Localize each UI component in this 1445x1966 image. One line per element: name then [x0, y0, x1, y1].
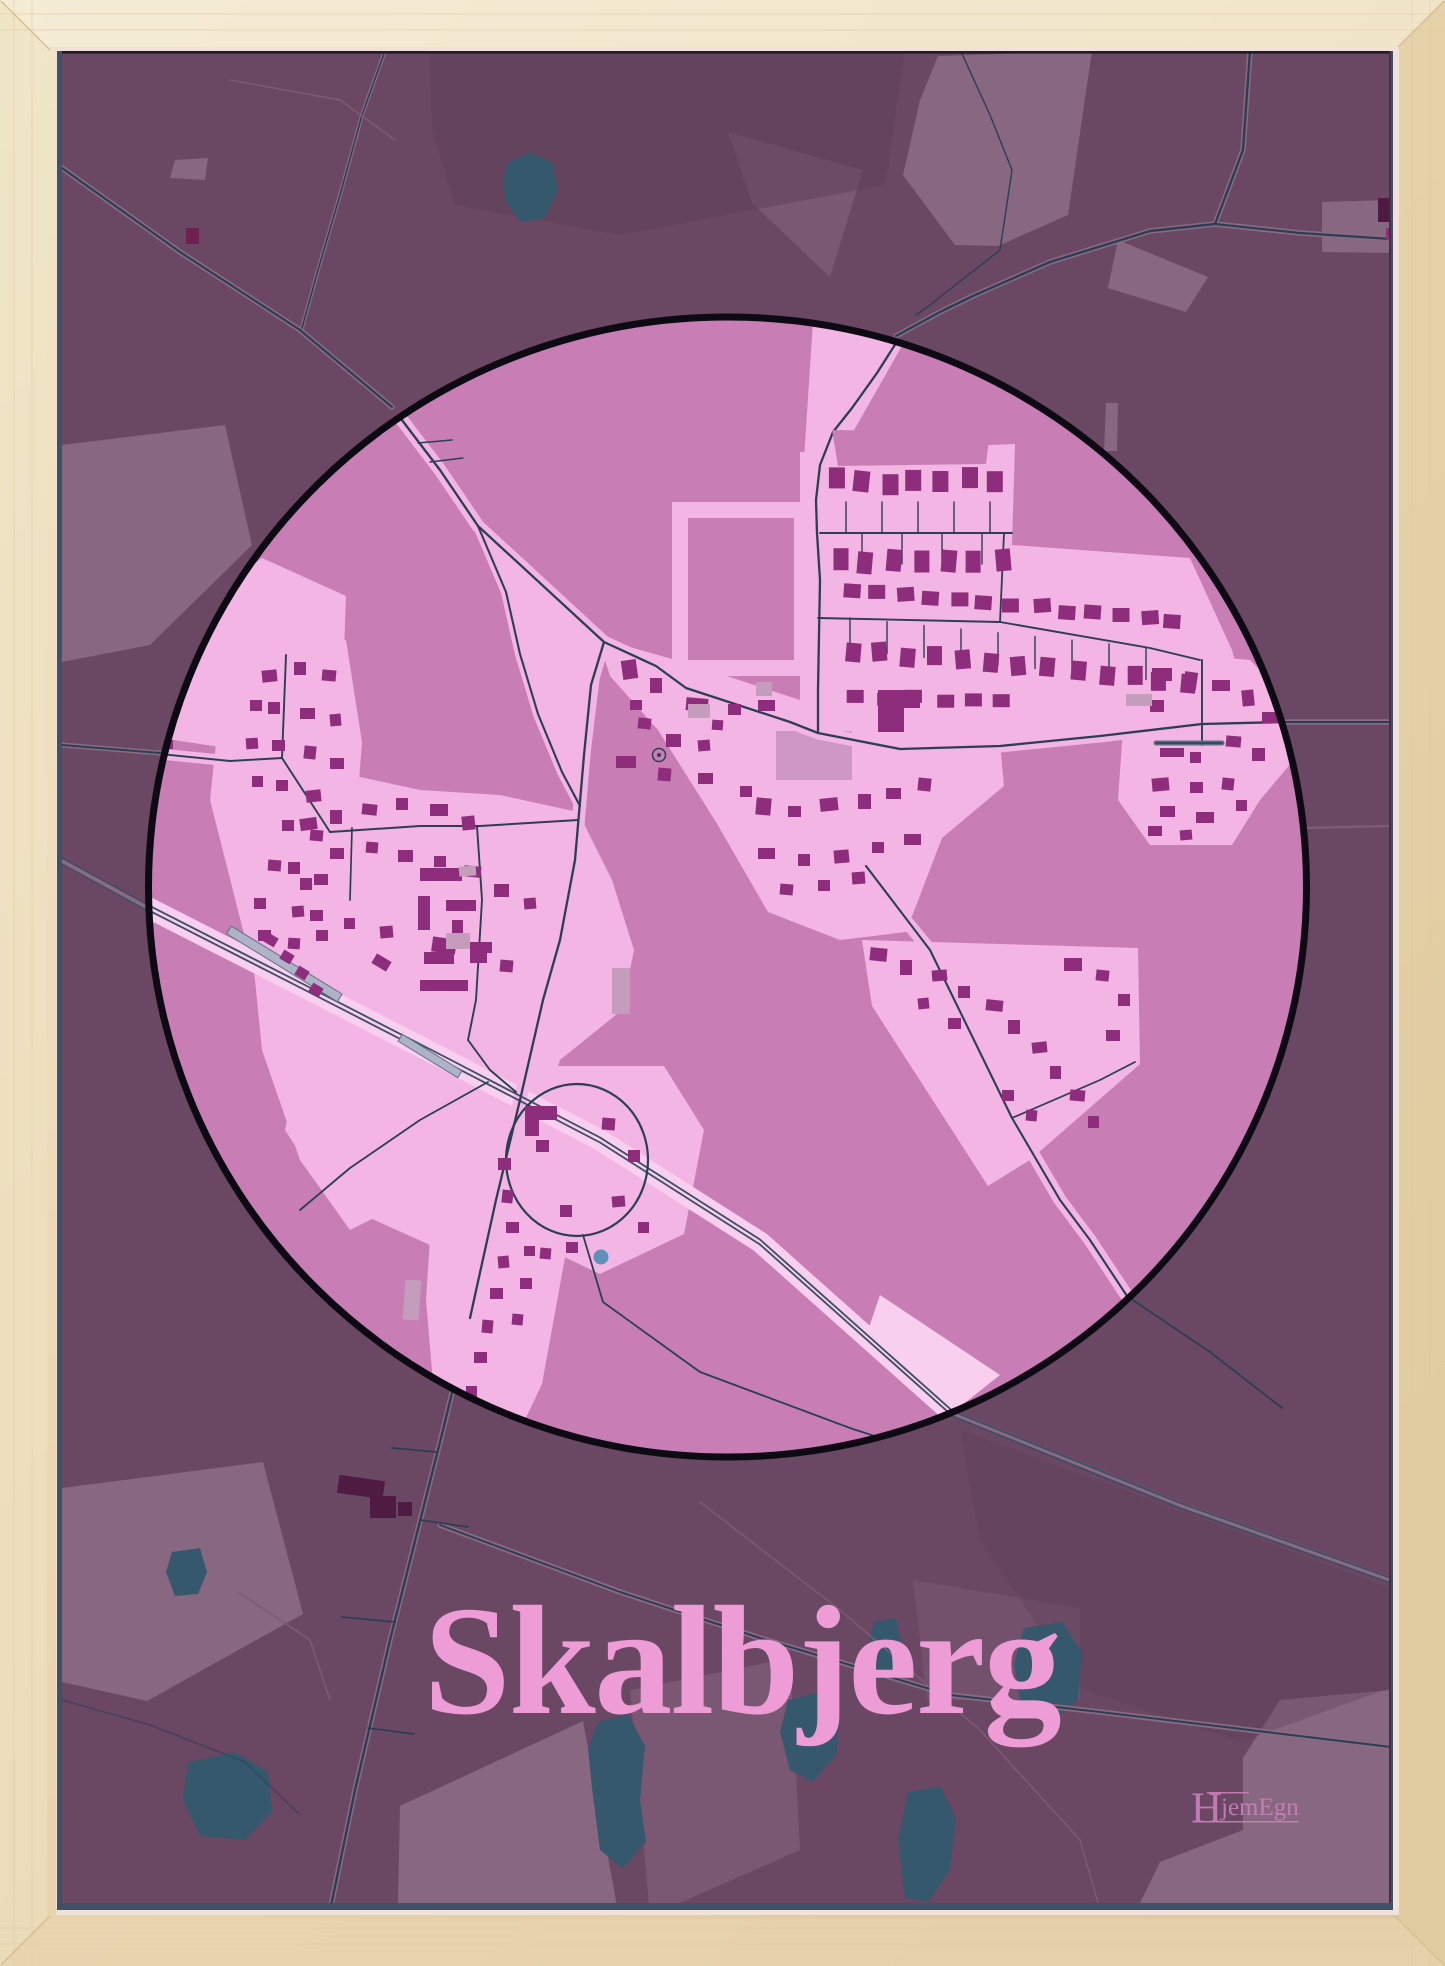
svg-text:Skalbjerg: Skalbjerg — [424, 1574, 1061, 1748]
svg-text:jemEgn: jemEgn — [1220, 1794, 1299, 1821]
